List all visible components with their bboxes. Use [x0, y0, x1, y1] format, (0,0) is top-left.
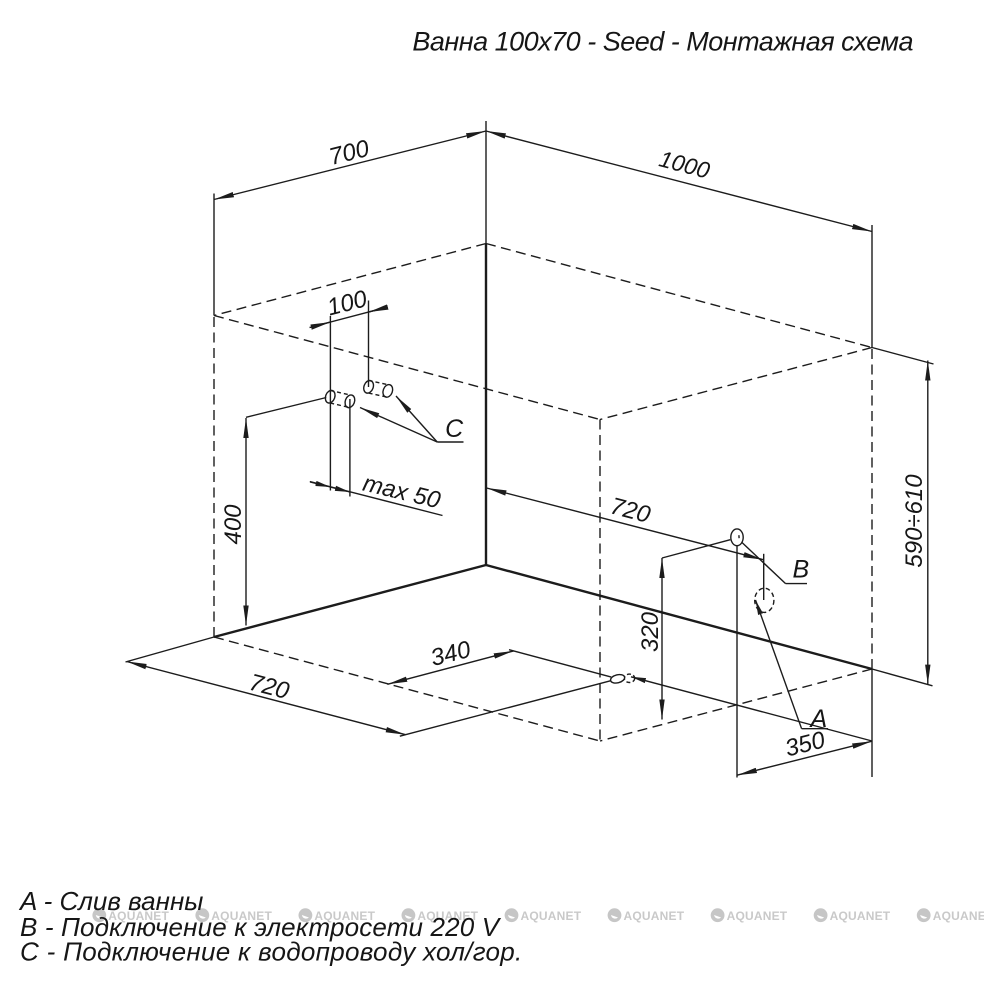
svg-text:AQUANET: AQUANET [933, 909, 984, 923]
svg-text:AQUANET: AQUANET [521, 909, 582, 923]
svg-text:AQUANET: AQUANET [727, 909, 788, 923]
svg-text:320: 320 [637, 611, 664, 652]
svg-text:max 50: max 50 [360, 470, 443, 515]
svg-text:B: B [793, 556, 810, 584]
svg-text:720: 720 [246, 669, 292, 705]
svg-text:700: 700 [326, 135, 372, 171]
svg-text:C: C [445, 415, 464, 443]
svg-text:400: 400 [220, 504, 247, 545]
svg-text:C - Подключение к водопроводу: C - Подключение к водопроводу хол/гор. [20, 937, 523, 967]
svg-text:AQUANET: AQUANET [830, 909, 891, 923]
svg-text:720: 720 [607, 493, 653, 529]
svg-text:340: 340 [428, 636, 474, 672]
svg-text:AQUANET: AQUANET [624, 909, 685, 923]
svg-text:100: 100 [324, 285, 370, 321]
svg-text:590÷610: 590÷610 [901, 474, 928, 568]
svg-text:350: 350 [782, 726, 828, 762]
svg-text:Ванна 100х70 - Seed - Монтажна: Ванна 100х70 - Seed - Монтажная схема [412, 27, 913, 57]
